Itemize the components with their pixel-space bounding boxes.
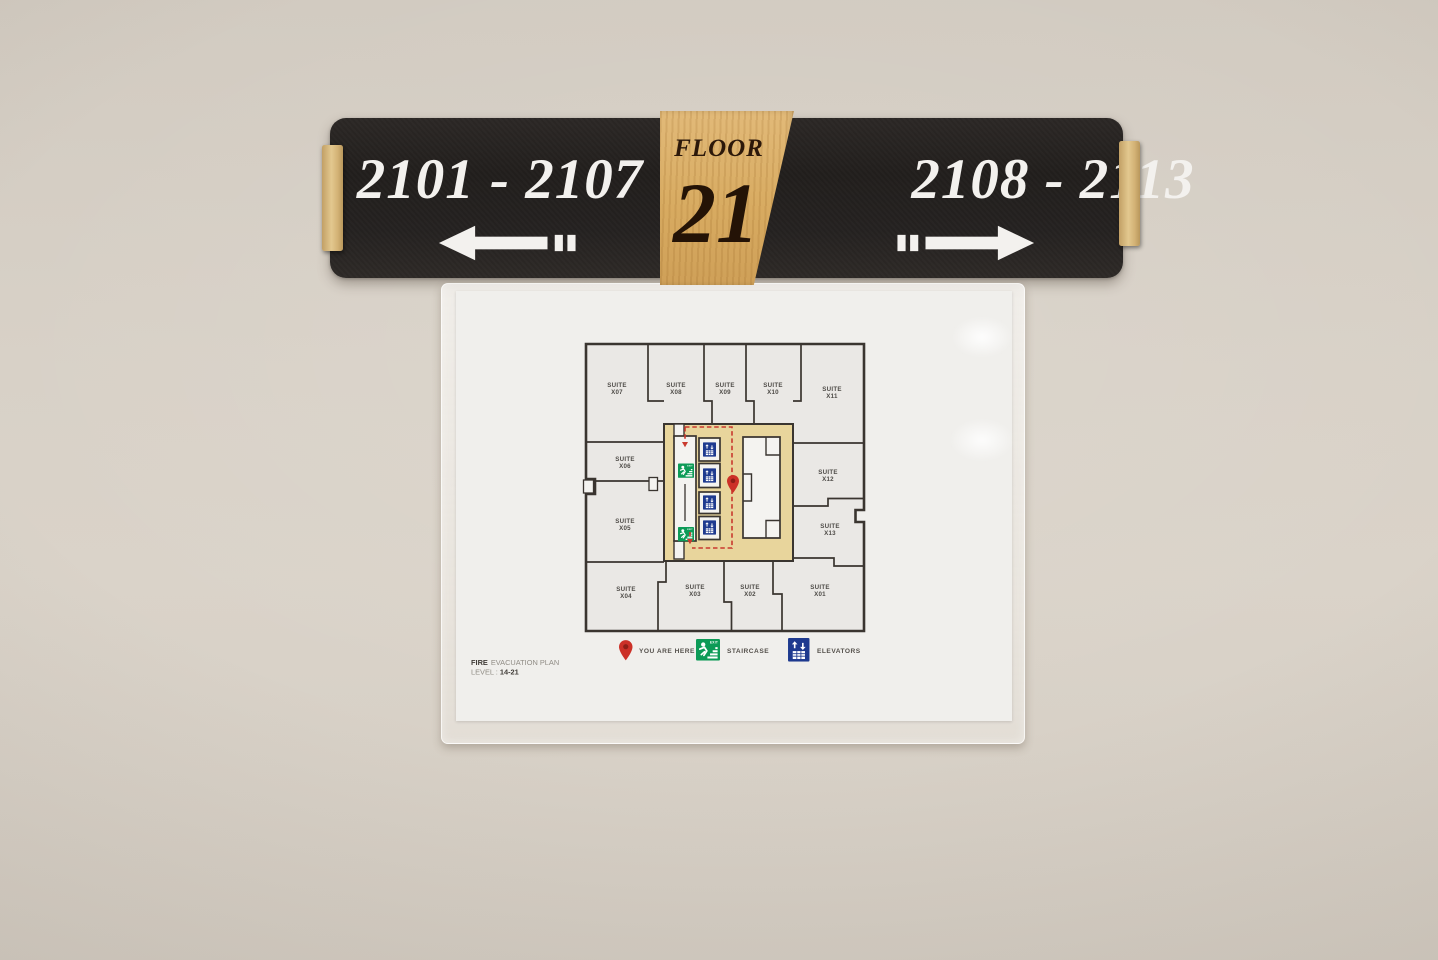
legend-staircase-icon bbox=[696, 639, 720, 661]
plan-legend: YOU ARE HERE STAIRCASE ELEVATORS bbox=[619, 638, 861, 662]
plastic-sleeve: EXIT bbox=[441, 283, 1025, 744]
svg-text:LEVEL :14-21: LEVEL :14-21 bbox=[471, 668, 519, 677]
plan-level-label: LEVEL : bbox=[471, 668, 498, 677]
legend-staircase-label: STAIRCASE bbox=[727, 648, 769, 655]
arrow-right-icon bbox=[886, 224, 1041, 262]
legend-elevators-label: ELEVATORS bbox=[817, 648, 861, 655]
evacuation-plan-paper: EXIT bbox=[456, 291, 1012, 721]
floor-plan: EXIT bbox=[456, 291, 1012, 721]
wall-photo: { "photo": { "wall_color": "#d6cfc5" }, … bbox=[0, 0, 1438, 960]
plan-level-value: 14-21 bbox=[500, 668, 519, 677]
legend-you-are-here-icon bbox=[619, 640, 633, 660]
plan-title-rest: EVACUATION PLAN bbox=[491, 658, 559, 667]
legend-elevators-icon bbox=[788, 638, 809, 662]
arrow-left-icon bbox=[432, 224, 587, 262]
plan-title-fire: FIRE bbox=[471, 658, 488, 667]
wood-end-cap-left bbox=[322, 145, 343, 251]
svg-text:FIREEVACUATION PLAN: FIREEVACUATION PLAN bbox=[471, 658, 559, 667]
suite-range-left: 2101 - 2107 bbox=[342, 148, 658, 212]
legend-you-are-here-label: YOU ARE HERE bbox=[639, 648, 695, 655]
wood-end-cap-right bbox=[1119, 141, 1140, 246]
plan-title-block: FIREEVACUATION PLAN LEVEL :14-21 bbox=[471, 658, 559, 677]
floor-number: 21 bbox=[660, 163, 772, 263]
floor-word: FLOOR bbox=[660, 135, 778, 163]
floor-directional-sign: 2101 - 2107 2108 - 2113 FLOOR 21 bbox=[320, 110, 1144, 292]
suite-range-right: 2108 - 2113 bbox=[888, 148, 1218, 212]
